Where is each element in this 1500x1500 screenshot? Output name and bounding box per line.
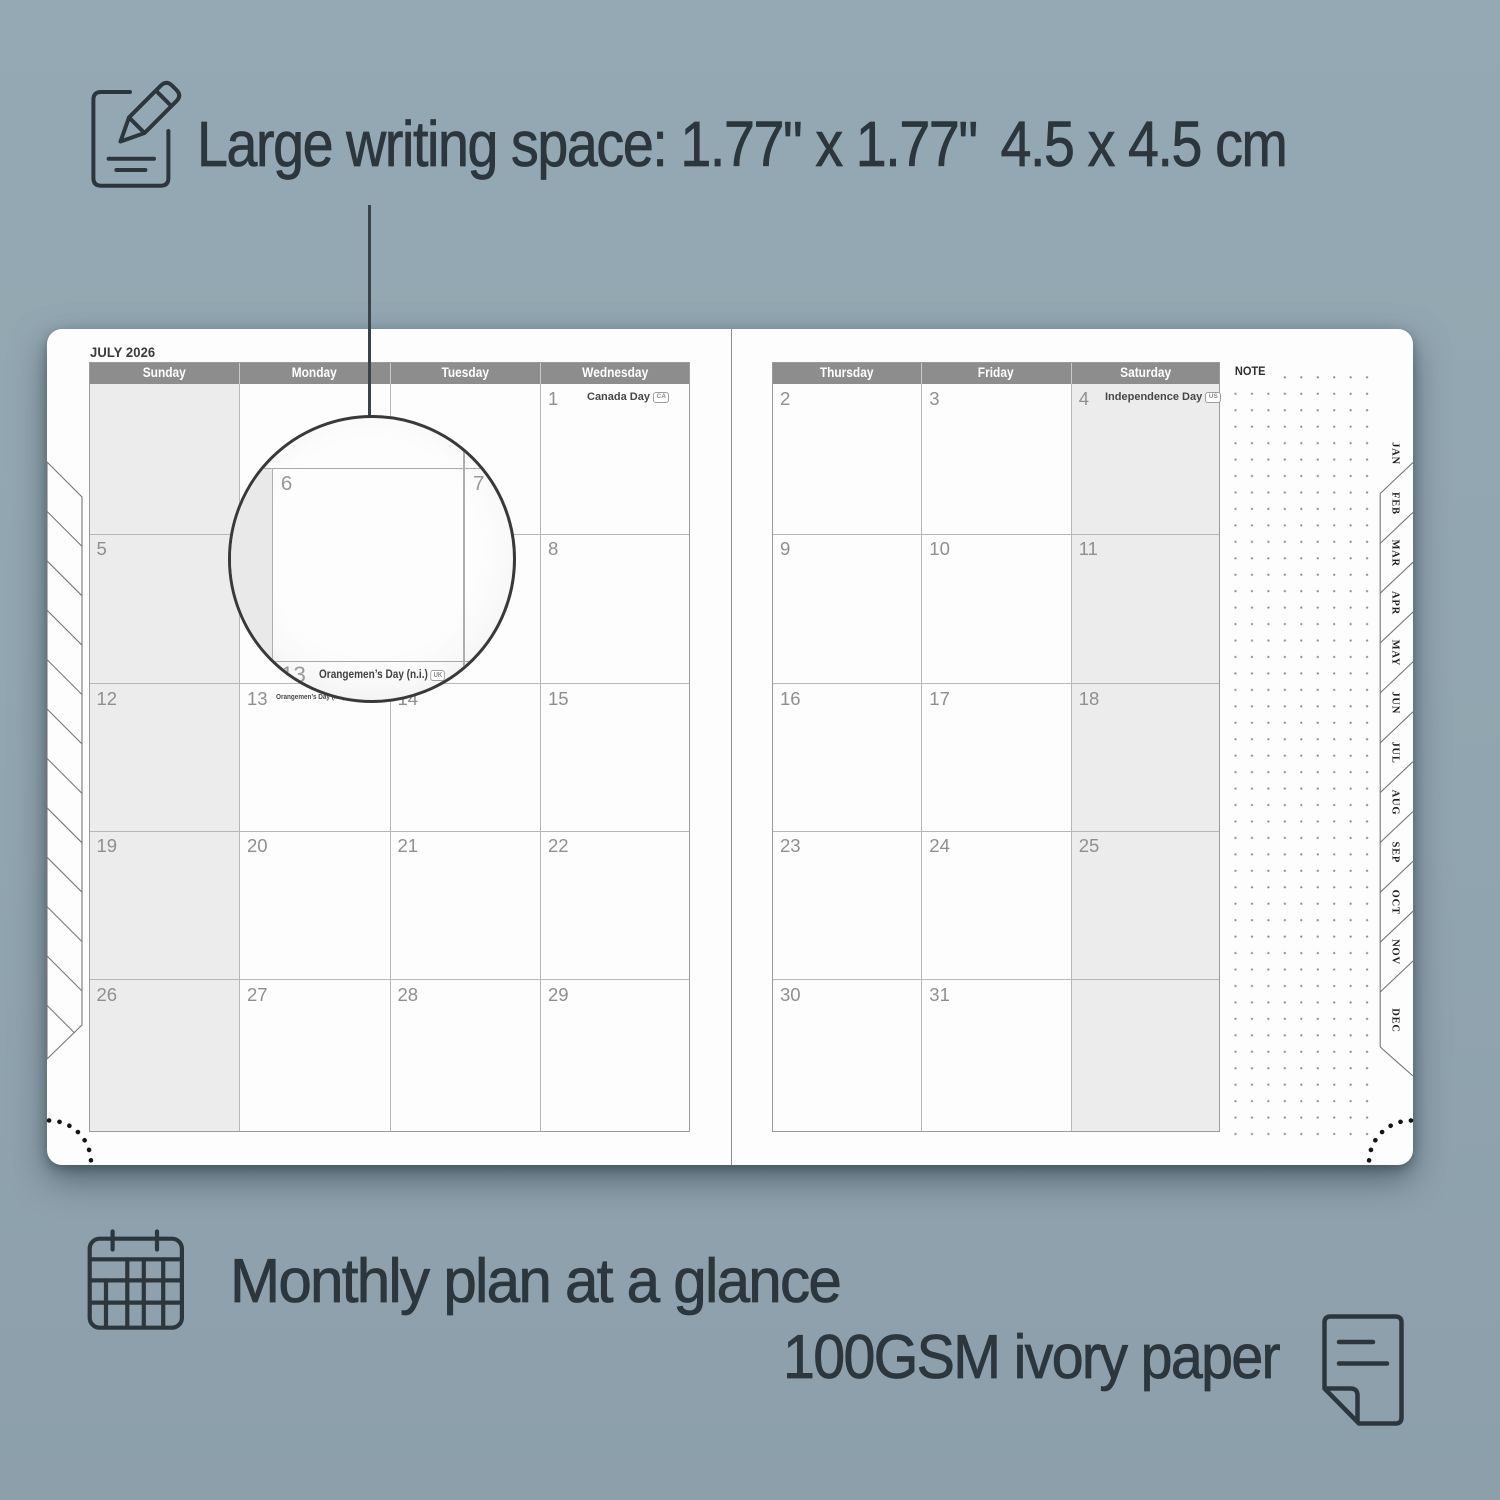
svg-text:FEB: FEB xyxy=(1390,492,1401,515)
svg-text:DEC: DEC xyxy=(1390,1008,1401,1033)
svg-text:AUG: AUG xyxy=(1390,790,1401,816)
svg-text:APR: APR xyxy=(1390,591,1401,615)
svg-text:JUL: JUL xyxy=(1390,741,1401,763)
svg-text:NOV: NOV xyxy=(1390,939,1401,965)
svg-text:JAN: JAN xyxy=(1390,442,1401,465)
svg-text:SEP: SEP xyxy=(1390,841,1401,863)
svg-text:MAR: MAR xyxy=(1390,539,1401,566)
svg-text:OCT: OCT xyxy=(1390,890,1401,915)
svg-text:JUN: JUN xyxy=(1390,691,1401,714)
svg-text:MAY: MAY xyxy=(1390,640,1401,667)
